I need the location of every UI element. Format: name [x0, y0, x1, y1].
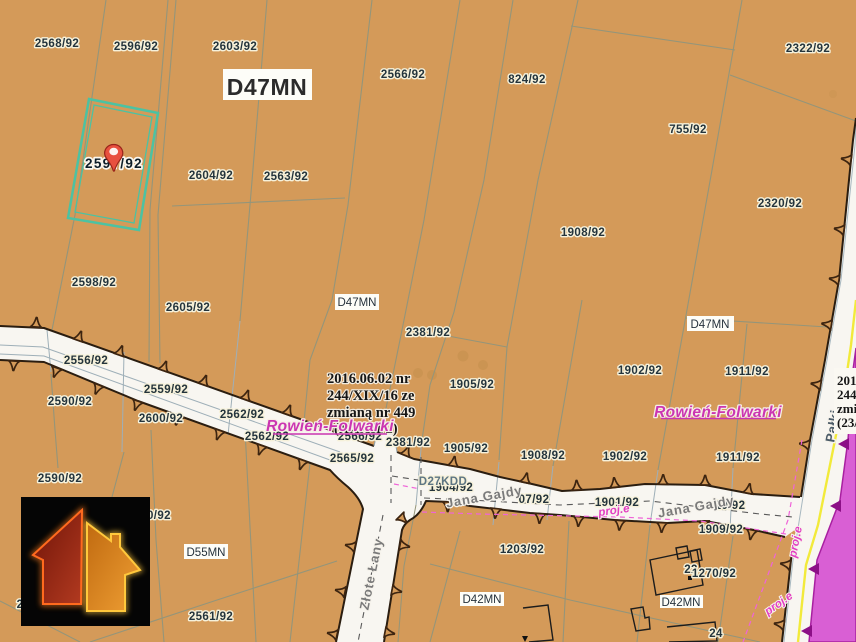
svg-text:D47MN: D47MN: [691, 319, 730, 331]
svg-text:D42MN: D42MN: [662, 597, 701, 609]
svg-text:2604/92: 2604/92: [189, 170, 233, 182]
svg-text:2320/92: 2320/92: [758, 198, 802, 210]
svg-text:1911/92: 1911/92: [716, 452, 760, 464]
svg-text:D27KDD: D27KDD: [419, 476, 467, 488]
svg-text:244/X: 244/X: [837, 387, 856, 402]
svg-text:2322/92: 2322/92: [786, 43, 830, 55]
svg-text:2563/92: 2563/92: [264, 171, 308, 183]
svg-text:1905/92: 1905/92: [444, 443, 488, 455]
svg-text:1902/92: 1902/92: [603, 451, 647, 463]
svg-text:(23/X: (23/X: [837, 415, 856, 430]
svg-text:2562/92: 2562/92: [220, 409, 264, 421]
svg-text:zmian: zmian: [837, 401, 856, 416]
svg-text:755/92: 755/92: [669, 124, 707, 136]
svg-text:2565/92: 2565/92: [330, 453, 374, 465]
svg-text:244/XIX/16 ze: 244/XIX/16 ze: [327, 388, 415, 404]
svg-text:2381/92: 2381/92: [406, 327, 450, 339]
svg-text:1270/92: 1270/92: [692, 568, 736, 580]
svg-text:2559/92: 2559/92: [144, 384, 188, 396]
svg-text:1908/92: 1908/92: [521, 450, 565, 462]
svg-text:2381/92: 2381/92: [386, 437, 430, 449]
svg-text:Rowień-Folwarki: Rowień-Folwarki: [266, 418, 394, 435]
svg-text:2590/92: 2590/92: [48, 396, 92, 408]
svg-text:1909/92: 1909/92: [699, 524, 743, 536]
svg-text:D47MN: D47MN: [338, 297, 377, 309]
svg-text:D47MN: D47MN: [227, 74, 307, 100]
svg-text:2605/92: 2605/92: [166, 302, 210, 314]
svg-text:D42MN: D42MN: [463, 594, 502, 606]
svg-text:2590/92: 2590/92: [38, 473, 82, 485]
svg-text:D55MN: D55MN: [187, 547, 226, 559]
svg-text:1911/92: 1911/92: [725, 366, 769, 378]
svg-text:1203/92: 1203/92: [500, 544, 544, 556]
svg-text:24: 24: [709, 628, 723, 640]
svg-text:1908/92: 1908/92: [561, 227, 605, 239]
svg-text:2561/92: 2561/92: [189, 611, 233, 623]
svg-text:2016.06.02 nr: 2016.06.02 nr: [327, 371, 411, 387]
svg-text:2568/92: 2568/92: [35, 38, 79, 50]
svg-text:2566/92: 2566/92: [381, 69, 425, 81]
svg-text:2600/92: 2600/92: [139, 413, 183, 425]
svg-text:824/92: 824/92: [508, 74, 546, 86]
svg-text:1902/92: 1902/92: [618, 365, 662, 377]
svg-text:2603/92: 2603/92: [213, 41, 257, 53]
svg-text:2598/92: 2598/92: [72, 277, 116, 289]
svg-text:2556/92: 2556/92: [64, 355, 108, 367]
svg-text:2016.0: 2016.0: [837, 373, 856, 388]
svg-text:0/92: 0/92: [147, 510, 171, 522]
svg-text:1905/92: 1905/92: [450, 379, 494, 391]
svg-text:2596/92: 2596/92: [114, 41, 158, 53]
